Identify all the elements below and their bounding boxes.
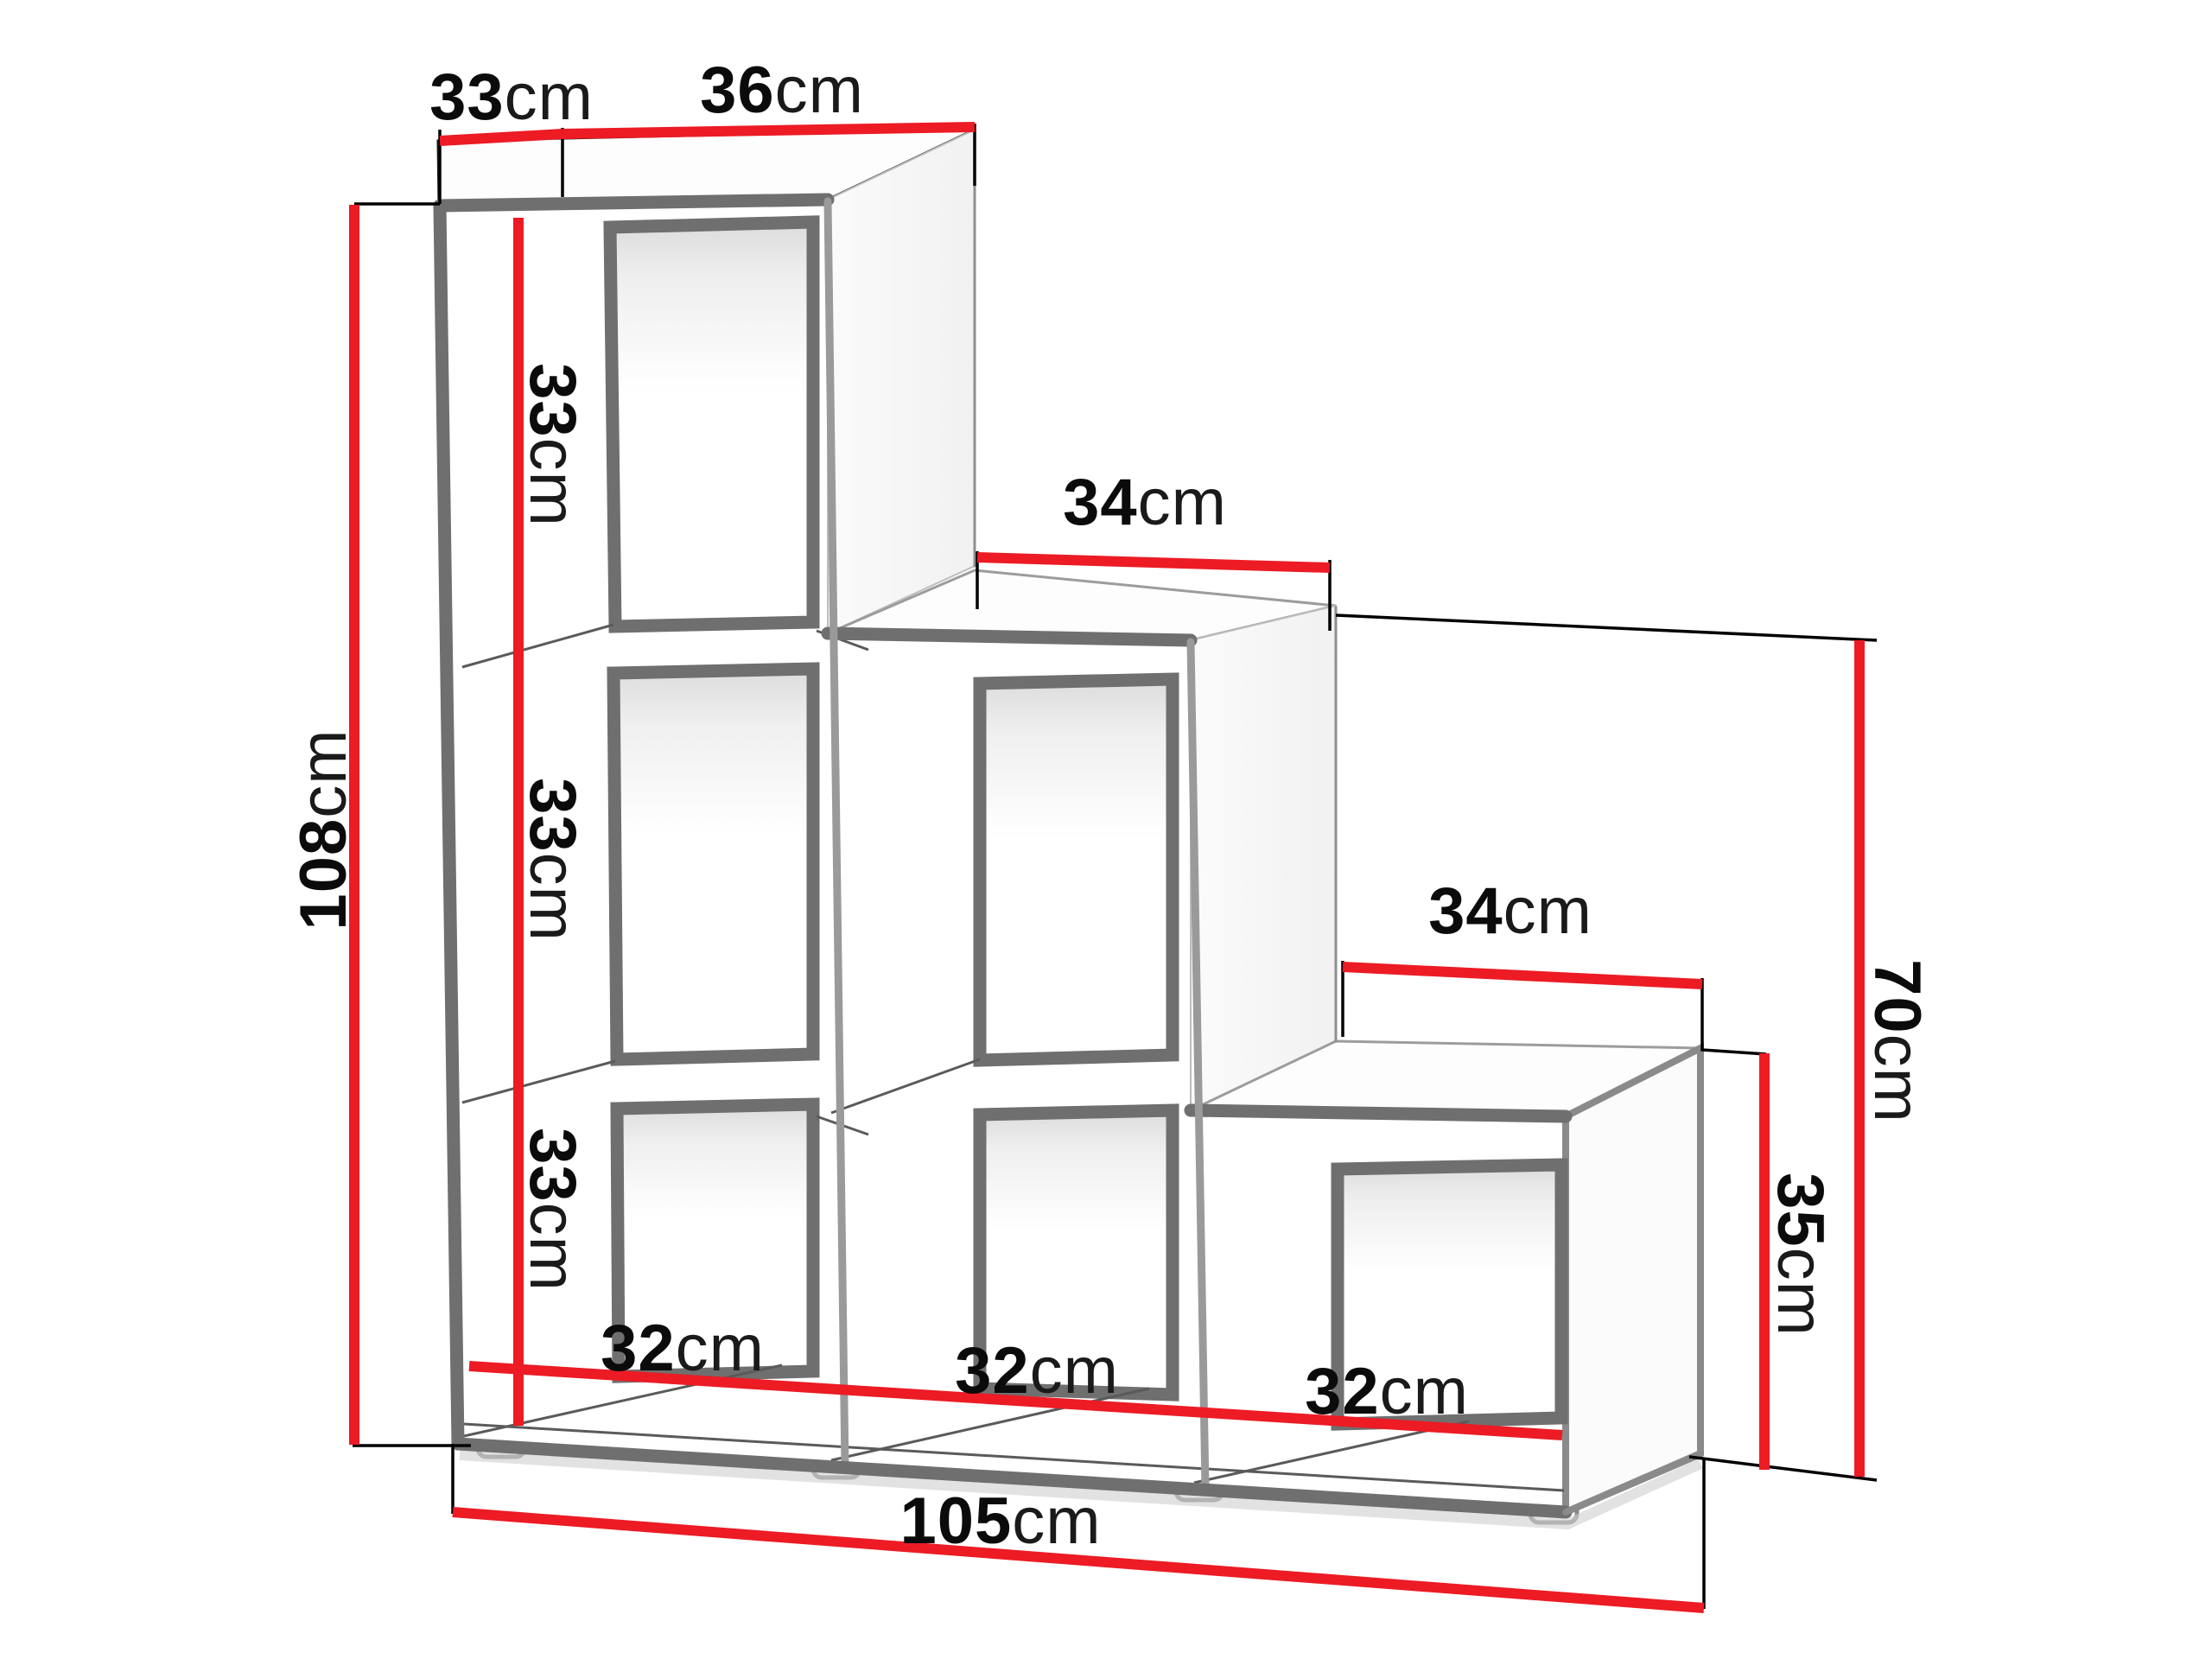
dim-label-cell-height-1: 33cm: [516, 363, 589, 527]
dim-label-right-height: 70cm: [1860, 959, 1934, 1123]
dimline-top-width: [563, 127, 975, 134]
dim-label-step-middle: 34cm: [1063, 466, 1227, 539]
cell-openings: [610, 222, 1561, 1424]
dim-label-right-step-height: 35cm: [1764, 1173, 1837, 1337]
dimline-step-middle: [977, 557, 1330, 568]
side-sliver-middle-column: [1191, 606, 1336, 1110]
right-end-panel: [1566, 1048, 1700, 1512]
cell-opening-a1: [610, 222, 813, 626]
dimline-top-depth: [440, 134, 563, 141]
dim-label-cell-height-3: 33cm: [516, 1128, 589, 1292]
cell-opening-a2: [613, 669, 813, 1059]
dim-label-cell-width-3: 32cm: [1305, 1355, 1469, 1428]
diagram-stage: 33cm 36cm 108cm 33cm 33cm 33cm 34cm 34cm…: [0, 0, 2212, 1659]
dim-label-cell-width-1: 32cm: [601, 1312, 765, 1385]
dim-label-step-right: 34cm: [1428, 874, 1592, 948]
dim-label-total-width: 105cm: [899, 1484, 1101, 1558]
dimline-step-right: [1343, 967, 1702, 984]
dim-label-top-width: 36cm: [700, 54, 864, 127]
edge-top-left-column: [440, 200, 828, 206]
dim-label-top-depth: 33cm: [429, 60, 594, 134]
step-shelf-dimension-drawing: 33cm 36cm 108cm 33cm 33cm 33cm 34cm 34cm…: [0, 0, 2212, 1659]
cell-opening-b1: [980, 679, 1173, 1060]
edge-top-right-column: [1191, 1110, 1566, 1116]
edge-top-middle-column: [828, 633, 1191, 640]
dim-label-total-height: 108cm: [287, 728, 360, 930]
dim-label-cell-height-2: 33cm: [516, 778, 589, 942]
side-sliver-left-column: [828, 130, 975, 633]
dim-label-cell-width-2: 32cm: [955, 1334, 1119, 1408]
